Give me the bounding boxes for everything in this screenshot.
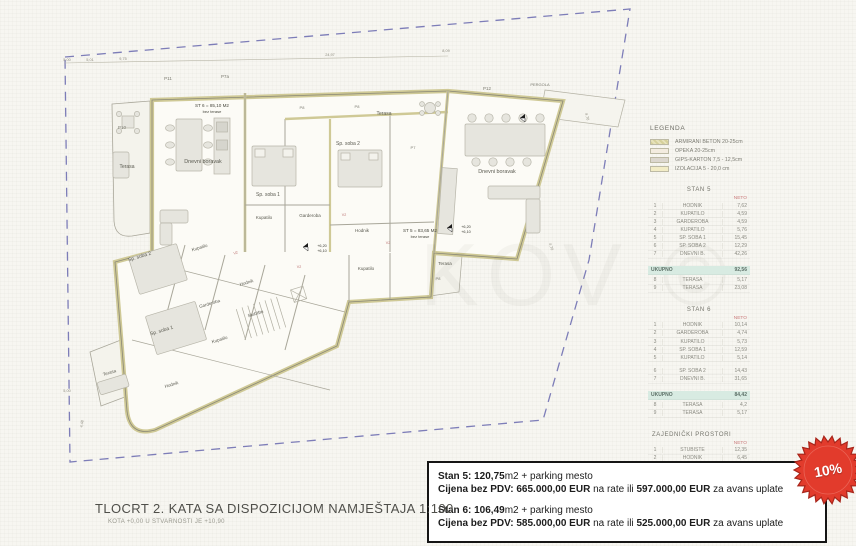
dim-label: 5,00 [63, 58, 70, 62]
table-total-row: UKUPNO84,42 [648, 391, 750, 400]
parcel-label: P11 [164, 76, 172, 81]
parcel-label: P10 [118, 125, 127, 130]
price-line-stan5-area: Stan 5: 120,75m2 + parking mesto [438, 470, 816, 483]
parcel-label: P7 [411, 145, 417, 150]
table-row: 9TERASA5,17 [648, 410, 750, 418]
parcel-label: P7a [221, 74, 230, 79]
table-title: STAN 6 [648, 307, 750, 313]
dim-label: 5,01 [86, 58, 93, 62]
table-row: 4KUPATILO5,76 [648, 226, 750, 234]
room-label: Garderoba [299, 213, 321, 218]
parcel-label: P8 [355, 104, 361, 109]
badge-text: 10% [786, 428, 856, 511]
table-row: 7DNEVNI B.31,65 [648, 375, 750, 383]
legend-item: GIPS-KARTON 7,5 - 12,5cm [648, 155, 750, 164]
table-row: 6SP. SOBA 214,43 [648, 367, 750, 375]
legend-item: IZOLACIJA 5 - 20,0 cm [648, 164, 750, 173]
room-label: Kupatilo [358, 266, 375, 271]
room-label: Kupatilo [256, 215, 273, 220]
room-label: Dnevni boravak [184, 159, 222, 165]
room-label: Terasa [119, 164, 134, 170]
table-row: 3GARDEROBA4,59 [648, 218, 750, 226]
area-label: bez terase [203, 109, 222, 114]
sheet-title: TLOCRT 2. KATA SA DISPOZICIJOM NAMJEŠTAJ… [95, 501, 454, 516]
table-row: 3KUPATILO5,73 [648, 338, 750, 346]
table-row: 5KUPATILO5,14 [648, 354, 750, 362]
price-line-stan6-price: Cijena bez PDV: 585.000,00 EUR na rate i… [438, 517, 816, 530]
table-row: 1HODNIK10,14 [648, 322, 750, 330]
table-row: 1HODNIK7,62 [648, 202, 750, 210]
door-code: V2 [342, 213, 346, 217]
swatch-armirani-beton [650, 139, 669, 145]
table-row: 9TERASA23,08 [648, 285, 750, 293]
table-title: ZAJEDNIČKI PROSTORI [652, 432, 750, 438]
legend-title: LEGENDA [650, 125, 750, 132]
room-label: Dnevni boravak [478, 169, 516, 175]
table-stan6: STAN 6 NETO 1HODNIK10,14 2GARDEROBA4,74 … [648, 307, 750, 418]
room-label: Hodnik [355, 228, 370, 233]
swatch-gips-karton [650, 157, 669, 163]
dim-label: 4,48 [79, 420, 84, 428]
room-label: Sp. soba 1 [256, 192, 280, 198]
legend-item: ARMIRANI BETON 20-25cm [648, 137, 750, 146]
legend-item: OPEKA 20-25cm [648, 146, 750, 155]
pergola-label: PERGOLA [530, 82, 550, 87]
table-row: 2KUPATILO4,59 [648, 210, 750, 218]
room-label: Terasa [376, 111, 391, 117]
price-line-stan6-area: Stan 6: 106,49m2 + parking mesto [438, 504, 816, 517]
parcel-label: P8 [300, 105, 306, 110]
dim-label: 8,09 [442, 49, 449, 53]
elevation-label: +6,20 [317, 244, 327, 248]
table-row: 8TERASA4,2 [648, 402, 750, 410]
discount-badge: 10% [792, 434, 856, 506]
side-panel: LEGENDA ARMIRANI BETON 20-25cm OPEKA 20-… [648, 125, 750, 484]
price-line-stan5-price: Cijena bez PDV: 665.000,00 EUR na rate i… [438, 483, 816, 496]
legend: LEGENDA ARMIRANI BETON 20-25cm OPEKA 20-… [648, 125, 750, 173]
room-label: Sp. soba 2 [336, 141, 360, 147]
table-title: STAN 5 [648, 187, 750, 193]
dim-label: 9,75 [119, 57, 126, 61]
dim-label: 24,97 [325, 53, 335, 57]
table-row: 2GARDEROBA4,74 [648, 330, 750, 338]
area-label: ST 6 = 85,10 M2 [195, 103, 229, 108]
parcel-label: P12 [483, 86, 492, 91]
sheet-subtitle: KOTA +0,00 U STVARNOSTI JE +10,90 [108, 519, 225, 525]
swatch-izolacija [650, 166, 669, 172]
table-row: 8TERASA5,17 [648, 277, 750, 285]
table-row: 4SP. SOBA 112,59 [648, 346, 750, 354]
dim-label: 5,00 [63, 389, 70, 393]
table-row: 1STUBIŠTE12,35 [648, 447, 750, 455]
price-box: Stan 5: 120,75m2 + parking mesto Cijena … [427, 461, 827, 543]
elevation-label: +6,10 [317, 249, 327, 253]
swatch-opeka [650, 148, 669, 154]
table-row: 6SP. SOBA 212,29 [648, 242, 750, 250]
table-row: 5SP. SOBA 115,45 [648, 234, 750, 242]
floor-plan-sheet: Terasa P10 Dnevni boravak ST 6 = 85,10 M… [0, 0, 856, 546]
table-total-row: UKUPNO92,56 [648, 266, 750, 275]
table-stan5: STAN 5 NETO 1HODNIK7,62 2KUPATILO4,59 3G… [648, 187, 750, 293]
door-code: V2 [386, 241, 390, 245]
table-row: 7DNEVNI B.42,26 [648, 251, 750, 259]
door-code: V2 [297, 265, 301, 269]
